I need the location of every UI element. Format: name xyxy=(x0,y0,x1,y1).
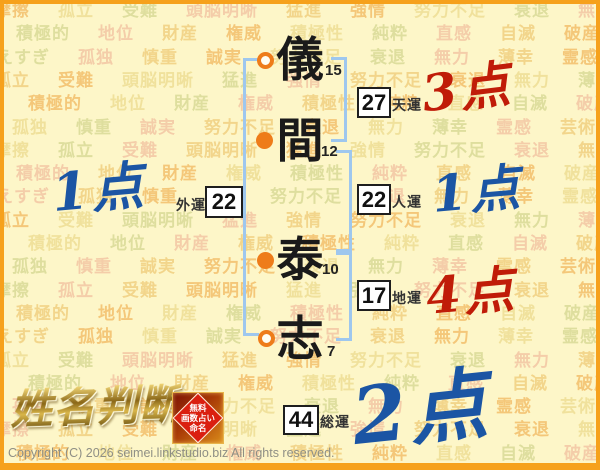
gaiun-score: 1点 xyxy=(50,160,148,220)
bottom-accent-bar xyxy=(0,463,600,470)
jinun-label: 人運 xyxy=(392,192,422,212)
chiun-label: 地運 xyxy=(392,288,422,308)
stroke-count-1: 15 xyxy=(325,62,342,79)
jinun-score: 1点 xyxy=(430,162,525,220)
tenun-score: 3点 xyxy=(419,59,515,120)
jinun-value-box: 22 xyxy=(357,184,391,215)
chiun-score: 4点 xyxy=(424,264,519,322)
gaiun-value-box: 22 xyxy=(205,186,243,218)
gaiun-label: 外運 xyxy=(176,195,206,215)
seal-line-1: 無料 xyxy=(189,403,206,413)
chiun-value-box: 17 xyxy=(357,280,391,311)
seal-text: 無料 画数占い 命名 xyxy=(173,393,223,443)
char-marker-icon xyxy=(256,132,273,149)
stroke-count-4: 7 xyxy=(327,343,335,360)
souun-value-box: 44 xyxy=(283,405,319,435)
souun-score: 2点 xyxy=(348,365,494,457)
gaiun-bracket xyxy=(243,58,259,336)
seal-badge: 無料 画数占い 命名 xyxy=(172,392,224,444)
name-char-2: 間 xyxy=(272,119,328,166)
souun-label: 総運 xyxy=(320,412,350,432)
tenun-label: 天運 xyxy=(392,95,422,115)
name-char-3: 泰 xyxy=(272,238,328,285)
tenun-value-box: 27 xyxy=(357,87,391,118)
jinun-bracket xyxy=(336,150,352,252)
name-char-1: 儀 xyxy=(272,38,328,85)
copyright-text: Copyright (C) 2026 seimei.linkstudio.biz… xyxy=(8,446,335,460)
name-char-4: 志 xyxy=(272,317,328,364)
seal-line-2: 画数占い xyxy=(181,413,215,423)
site-logo: 姓名判断 xyxy=(9,383,182,431)
seimei-handan-result-page: 摩擦孤立受難頭脳明晰猛進強情努力不足衰退無力薄幸霊感遅咲き摩擦孤立受難芸術積極的… xyxy=(0,0,600,470)
stroke-count-2: 12 xyxy=(321,143,338,160)
seal-line-3: 命名 xyxy=(189,423,206,433)
stroke-count-3: 10 xyxy=(322,261,339,278)
